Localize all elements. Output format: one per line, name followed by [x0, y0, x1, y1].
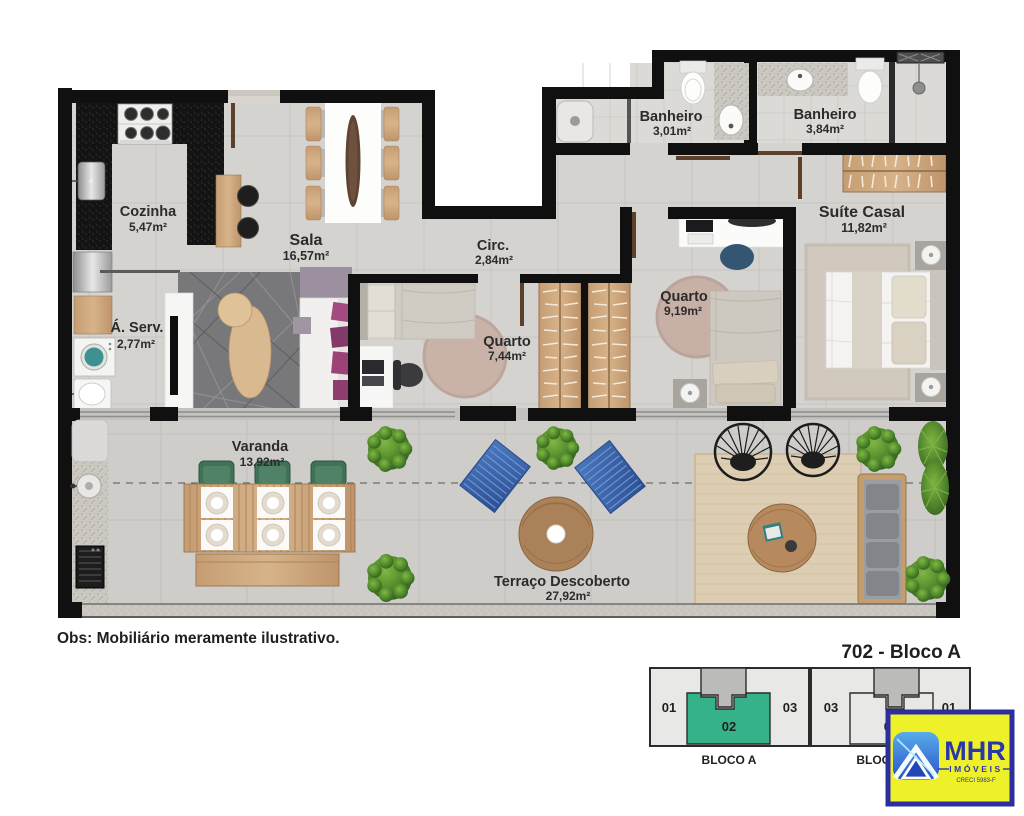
svg-text:5,47m²: 5,47m²: [129, 220, 167, 234]
svg-text:9,19m²: 9,19m²: [664, 304, 702, 318]
svg-text:03: 03: [783, 700, 797, 715]
svg-text:Banheiro: Banheiro: [640, 109, 703, 125]
svg-text:2,77m²: 2,77m²: [117, 337, 155, 351]
svg-text:MHR: MHR: [944, 736, 1006, 766]
svg-text:2,84m²: 2,84m²: [475, 253, 513, 267]
svg-text:7,44m²: 7,44m²: [488, 349, 526, 363]
svg-text:13,92m²: 13,92m²: [240, 455, 285, 469]
svg-text:Terraço Descoberto: Terraço Descoberto: [494, 574, 630, 590]
svg-text:Varanda: Varanda: [232, 439, 289, 455]
svg-text:BLOCO A: BLOCO A: [702, 753, 757, 767]
svg-text:3,84m²: 3,84m²: [806, 122, 844, 136]
svg-text:702 - Bloco A: 702 - Bloco A: [841, 642, 961, 663]
svg-text:Cozinha: Cozinha: [120, 204, 177, 220]
svg-text:3,01m²: 3,01m²: [653, 124, 691, 138]
svg-text:Á. Serv.: Á. Serv.: [111, 319, 164, 336]
svg-text:Suíte Casal: Suíte Casal: [819, 204, 905, 221]
svg-text:Sala: Sala: [290, 232, 323, 249]
svg-text:Circ.: Circ.: [477, 238, 509, 254]
svg-text:CRECI 5983-F: CRECI 5983-F: [956, 778, 996, 784]
svg-text:Quarto: Quarto: [660, 289, 708, 305]
svg-text:01: 01: [662, 700, 676, 715]
svg-text:IMÓVEIS: IMÓVEIS: [949, 763, 1003, 774]
svg-text:27,92m²: 27,92m²: [546, 589, 591, 603]
svg-text:Obs: Mobiliário meramente ilus: Obs: Mobiliário meramente ilustrativo.: [57, 630, 340, 647]
svg-text:Quarto: Quarto: [483, 334, 531, 350]
svg-text:03: 03: [824, 700, 838, 715]
svg-text:11,82m²: 11,82m²: [841, 221, 887, 235]
svg-text:02: 02: [722, 719, 736, 734]
svg-text:Banheiro: Banheiro: [794, 107, 857, 123]
svg-text:16,57m²: 16,57m²: [283, 249, 330, 263]
